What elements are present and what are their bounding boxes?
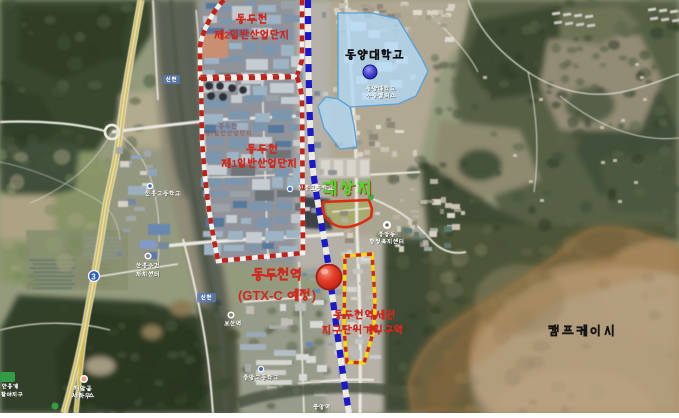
svg-text:1: 1 <box>210 131 214 138</box>
svg-text:G: G <box>242 288 252 303</box>
svg-text:): ) <box>312 288 316 303</box>
svg-text:T: T <box>253 288 261 303</box>
svg-text:우: 우 <box>85 392 91 400</box>
svg-text:희: 희 <box>75 392 81 400</box>
svg-text:3: 3 <box>91 273 96 282</box>
svg-text:2: 2 <box>224 30 230 42</box>
svg-text:C: C <box>273 288 283 303</box>
svg-text:X: X <box>260 288 269 303</box>
svg-text:1: 1 <box>231 158 237 170</box>
